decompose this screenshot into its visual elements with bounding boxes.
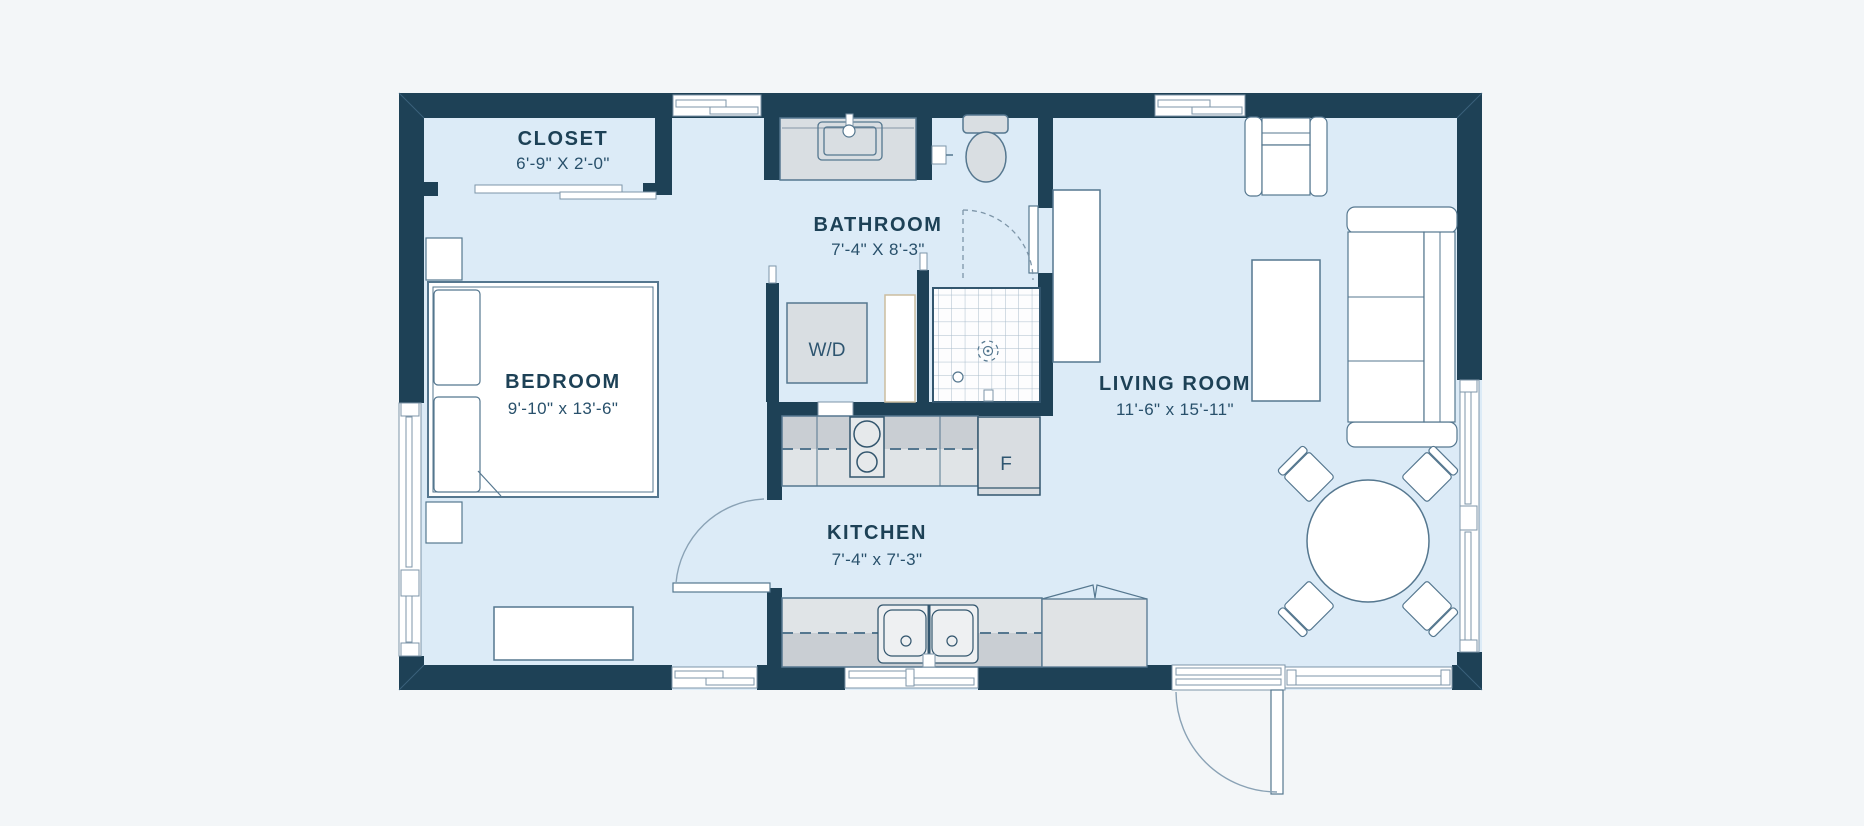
bathroom-kitchen-wall xyxy=(767,402,1053,416)
living-room-dims: 11'-6" x 15'-11" xyxy=(1116,400,1234,419)
pillow-2 xyxy=(434,397,480,492)
sofa-seat xyxy=(1348,232,1424,422)
armchair xyxy=(1245,117,1327,196)
window-top-1 xyxy=(673,95,761,116)
closet-left-stub xyxy=(424,182,438,196)
sink-faucet xyxy=(923,654,935,667)
dresser xyxy=(494,607,633,660)
wall-bottom-bedroom xyxy=(399,665,672,690)
bathroom-right-wall-upper xyxy=(1038,118,1053,208)
shower-control xyxy=(953,372,963,382)
closet-label: CLOSET xyxy=(518,128,609,150)
wall-notch xyxy=(818,402,853,416)
laundry-slider-wall-left xyxy=(766,283,779,402)
shower xyxy=(933,288,1040,402)
window-right xyxy=(1460,380,1479,652)
kitchen-sink xyxy=(878,605,978,667)
shower-slider-wall xyxy=(917,270,929,402)
nightstand-bottom xyxy=(426,502,462,543)
bedroom-right-wall-stub xyxy=(767,588,782,667)
bedroom-right-wall xyxy=(767,402,782,500)
dining-table xyxy=(1307,480,1429,602)
floor-plan-svg: F xyxy=(0,0,1864,826)
window-bottom-bedroom xyxy=(672,667,757,688)
pocket-door-panel xyxy=(885,295,915,402)
bathroom-dims: 7'-4" X 8'-3" xyxy=(831,240,925,259)
shower-fixture xyxy=(984,390,993,401)
bedroom-door-leaf xyxy=(673,583,770,592)
sofa-arm-bottom xyxy=(1347,422,1457,447)
living-room-label: LIVING ROOM xyxy=(1099,373,1251,395)
kitchen-label: KITCHEN xyxy=(827,522,927,544)
closet-dims: 6'-9" X 2'-0" xyxy=(516,154,610,173)
wardrobe xyxy=(1053,190,1100,362)
faucet xyxy=(843,125,855,137)
vanity xyxy=(780,114,916,180)
nightstand-top xyxy=(426,238,462,280)
wall-left-upper xyxy=(399,93,424,403)
window-bottom-living xyxy=(1285,667,1452,688)
window-left xyxy=(399,403,421,656)
closet-rod-2 xyxy=(560,192,656,199)
closet-right-wall xyxy=(655,118,672,195)
wall-bottom-mid1 xyxy=(757,665,845,690)
vanity-separator-wall xyxy=(916,118,932,180)
bathroom-left-wall xyxy=(764,118,780,180)
kitchen-dims: 7'-4" x 7'-3" xyxy=(832,550,923,569)
slider-handle-left xyxy=(769,266,776,283)
sofa xyxy=(1347,207,1457,447)
floor-plan: F xyxy=(0,0,1864,826)
fridge-label: F xyxy=(1000,454,1012,475)
wall-bottom-mid2 xyxy=(978,665,1172,690)
bathroom-label: BATHROOM xyxy=(813,214,942,236)
bedroom-label: BEDROOM xyxy=(505,371,621,393)
wall-top xyxy=(399,93,1482,118)
entry-door-leaf xyxy=(1271,690,1283,794)
bedroom-dims: 9'-10" x 13'-6" xyxy=(508,399,619,418)
window-bottom-kitchen xyxy=(845,667,978,688)
wall-right-upper xyxy=(1457,93,1482,380)
fridge: F xyxy=(978,417,1040,495)
wall-bottom-corner xyxy=(1452,665,1482,690)
window-top-2 xyxy=(1155,95,1245,116)
coffee-table xyxy=(1252,260,1320,401)
stove xyxy=(850,417,884,477)
sofa-arm-top xyxy=(1347,207,1457,233)
pillow-1 xyxy=(434,290,480,385)
toilet xyxy=(963,115,1008,182)
washer-dryer-label: W/D xyxy=(809,340,846,361)
